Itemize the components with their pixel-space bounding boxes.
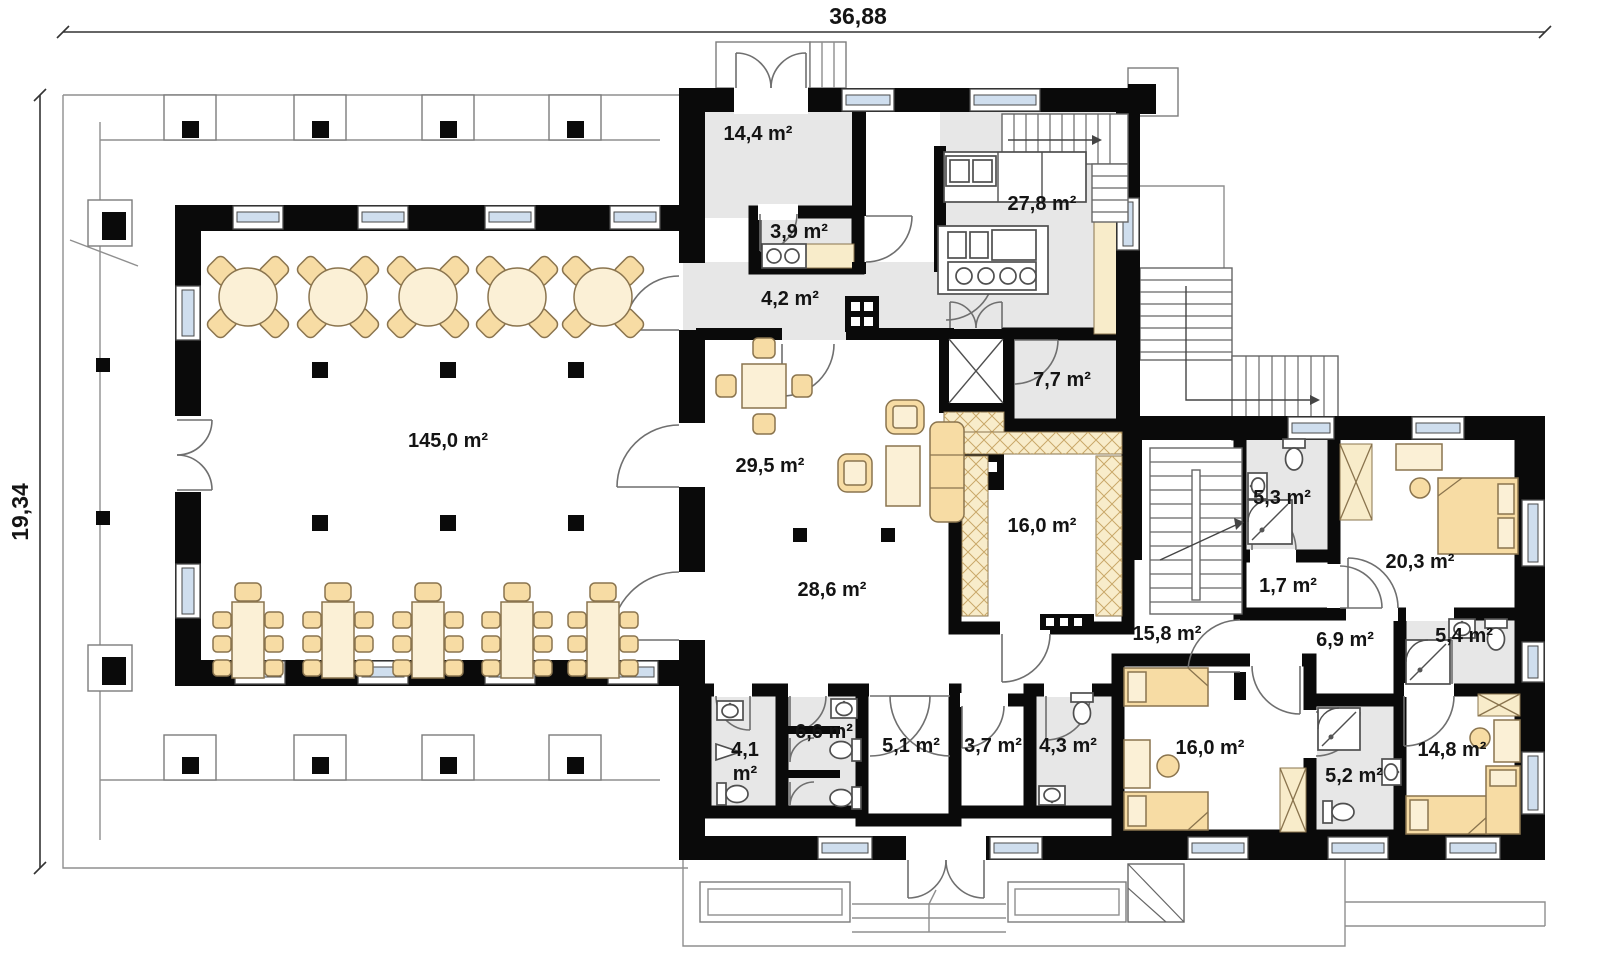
- kitchen-island: [938, 226, 1048, 294]
- room-label-wc41-line2: m²: [733, 763, 758, 785]
- banquet-table: [303, 583, 373, 678]
- wardrobe: [1478, 694, 1520, 716]
- dimension-height-label: 19,34: [7, 483, 33, 541]
- elevator-icon: [944, 334, 1008, 408]
- room-label-kitchen: 27,8 m²: [1008, 193, 1077, 215]
- banquet-table: [568, 583, 638, 678]
- window-icon: [233, 206, 283, 229]
- coffee-table: [886, 446, 920, 506]
- dimension-left: 19,34: [7, 89, 46, 874]
- door-swing-icon: [611, 572, 679, 640]
- exterior-stairs-right: [1140, 186, 1338, 440]
- window-icon: [1522, 752, 1544, 814]
- single-bed: [1124, 668, 1208, 706]
- room-label-storage37: 3,7 m²: [964, 735, 1022, 757]
- window-icon: [610, 206, 660, 229]
- window-icon: [176, 286, 200, 340]
- room-label-hall: 145,0 m²: [408, 430, 488, 452]
- desk: [1396, 444, 1442, 470]
- banquet-tables: [213, 583, 638, 678]
- single-bed: [1406, 796, 1488, 834]
- room-label-wc41-line1: 4,1: [731, 739, 759, 761]
- door-swing-icon: [908, 860, 946, 898]
- armchair: [886, 400, 924, 434]
- banquet-table: [213, 583, 283, 678]
- window-icon: [970, 89, 1040, 111]
- terrace-corner-pillars: [88, 200, 132, 691]
- round-table: [205, 254, 291, 340]
- armchair: [838, 454, 872, 492]
- window-icon: [842, 89, 894, 111]
- wardrobe: [1280, 768, 1306, 832]
- room-label-bath43: 4,3 m²: [1039, 735, 1097, 757]
- room-label-wc39: 3,9 m²: [770, 221, 828, 243]
- room-label-room16a: 16,0 m²: [1008, 515, 1077, 537]
- round-table: [295, 254, 381, 340]
- kitchen-sink-icon: [946, 156, 996, 186]
- window-icon: [1446, 837, 1500, 859]
- room-label-wc66: 6,6 m²: [795, 721, 853, 743]
- stool: [1410, 478, 1430, 498]
- room-label-hall158: 15,8 m²: [1133, 623, 1202, 645]
- window-icon: [1328, 837, 1388, 859]
- window-icon: [1288, 417, 1334, 439]
- stairs-hall158: [1150, 448, 1244, 614]
- round-table: [385, 254, 471, 340]
- door-swing-icon: [1002, 634, 1050, 682]
- room-label-corridor42: 4,2 m²: [761, 288, 819, 310]
- room-label-storage51: 5,1 m²: [882, 735, 940, 757]
- room-label-bedroom203: 20,3 m²: [1386, 551, 1455, 573]
- chimney-icon: [1040, 614, 1094, 630]
- double-bed: [1438, 478, 1518, 554]
- round-table: [474, 254, 560, 340]
- window-icon: [1522, 642, 1544, 682]
- lounge-furniture: [716, 338, 964, 522]
- room-label-bath53: 5,3 m²: [1253, 487, 1311, 509]
- dining-round-tables: [205, 254, 646, 340]
- single-bed: [1124, 792, 1208, 830]
- window-icon: [990, 837, 1042, 859]
- sofa: [930, 422, 964, 522]
- window-icon: [818, 837, 872, 859]
- room-label-bedroom16b: 16,0 m²: [1176, 737, 1245, 759]
- floor-plan-drawing: 145,0 m² 14,4 m² 3,9 m² 4,2 m² 27,8 m² 7…: [0, 0, 1600, 971]
- wardrobe: [1340, 444, 1372, 520]
- single-bed: [1486, 766, 1520, 834]
- door-swing-icon: [617, 425, 679, 487]
- window-icon: [176, 564, 200, 618]
- window-icon: [1412, 417, 1464, 439]
- desk: [1494, 720, 1520, 762]
- door-swing-icon: [866, 216, 912, 262]
- room-label-closet17: 1,7 m²: [1259, 575, 1317, 597]
- room-label-hall69: 6,9 m²: [1316, 629, 1374, 651]
- room-label-bath54: 5,4 m²: [1435, 625, 1493, 647]
- terrace-pillars-top: [164, 95, 601, 140]
- chimney-icon: [845, 296, 879, 332]
- banquet-table: [482, 583, 552, 678]
- round-table: [560, 254, 646, 340]
- shower-icon: [1318, 708, 1360, 750]
- window-icon: [1188, 837, 1248, 859]
- floor-plan-page: 145,0 m² 14,4 m² 3,9 m² 4,2 m² 27,8 m² 7…: [0, 0, 1600, 971]
- dimension-width-label: 36,88: [829, 3, 887, 29]
- dimension-top: 36,88: [57, 3, 1551, 38]
- terrace-pillars-bottom: [164, 735, 601, 780]
- room-label-corridor286: 28,6 m²: [798, 579, 867, 601]
- window-icon: [485, 206, 535, 229]
- window-icon: [358, 206, 408, 229]
- room-label-lounge: 29,5 m²: [736, 455, 805, 477]
- banquet-table: [393, 583, 463, 678]
- door-swing-icon: [946, 860, 984, 898]
- room-label-bath52: 5,2 m²: [1325, 765, 1383, 787]
- window-icon: [1522, 500, 1544, 566]
- desk: [1124, 740, 1150, 788]
- room-label-vestibule: 14,4 m²: [724, 123, 793, 145]
- sink-unit-39: [762, 244, 806, 268]
- square-table: [716, 338, 812, 434]
- room-label-storage77: 7,7 m²: [1033, 369, 1091, 391]
- room-label-bedroom148: 14,8 m²: [1418, 739, 1487, 761]
- porch-bottom: [683, 860, 1545, 946]
